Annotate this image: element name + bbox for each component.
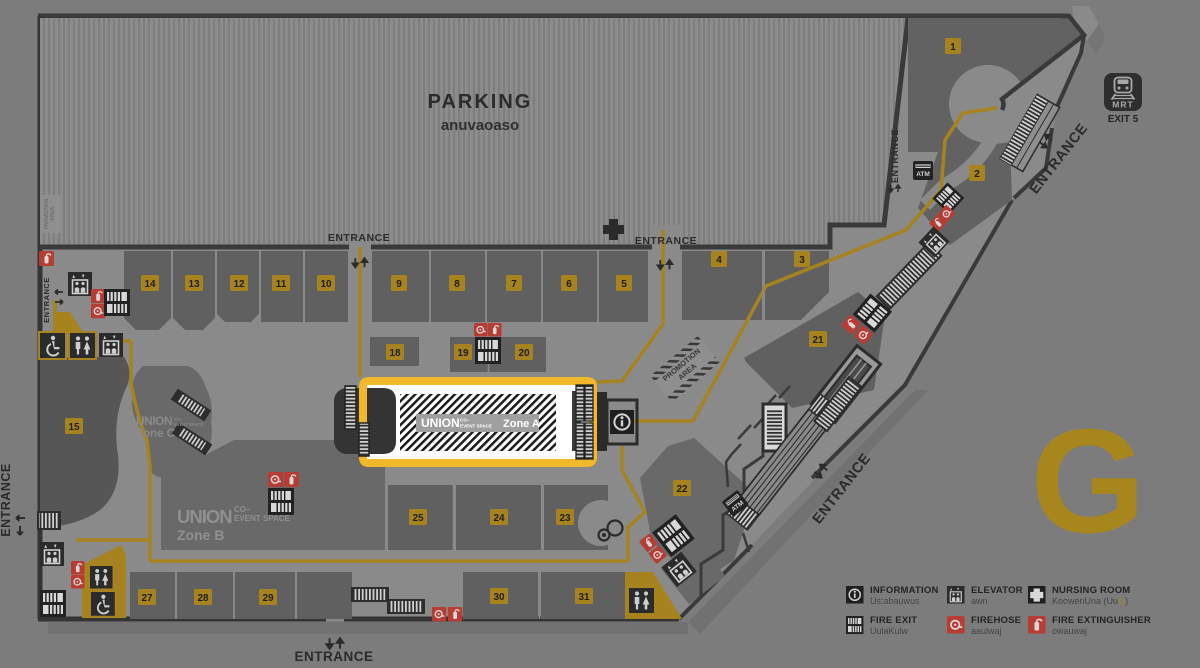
svg-text:2: 2 [974,169,980,180]
svg-text:28: 28 [197,593,209,604]
svg-text:anuvaoaso: anuvaoaso [441,117,519,134]
svg-text:14: 14 [144,279,156,290]
svg-text:30: 30 [493,592,505,603]
svg-text:7: 7 [511,279,517,290]
svg-text:6: 6 [566,279,572,290]
svg-text:ELEVATOR: ELEVATOR [971,585,1023,596]
svg-text:5: 5 [621,279,627,290]
svg-text:Zone A: Zone A [503,418,540,430]
svg-text:3: 3 [799,255,805,266]
svg-text:4: 4 [716,255,722,266]
svg-text:EXIT 5: EXIT 5 [1108,114,1139,125]
svg-text:G: G [1030,399,1145,564]
svg-text:Us:abauwus: Us:abauwus [870,596,920,606]
svg-text:18: 18 [389,348,401,359]
svg-text:AREA: AREA [50,207,56,222]
svg-text:Zone C: Zone C [136,428,175,440]
svg-text:19: 19 [457,348,469,359]
svg-text:MRT: MRT [1112,100,1133,110]
svg-text:ENTRANCE: ENTRANCE [42,277,51,323]
svg-text:EVENT SPACE: EVENT SPACE [234,514,291,523]
svg-text:29: 29 [262,593,274,604]
svg-text:awn: awn [971,596,988,606]
svg-text:CO–: CO– [460,418,470,423]
svg-text:10: 10 [320,279,332,290]
svg-text:9: 9 [396,279,402,290]
svg-text:Zone B: Zone B [177,527,224,543]
svg-text:UNION: UNION [177,506,232,527]
svg-text:ENTRANCE: ENTRANCE [328,232,390,244]
svg-text:UNION: UNION [136,414,172,428]
svg-text:15: 15 [68,422,80,433]
svg-text:8: 8 [454,279,460,290]
svg-text:NURSING ROOM: NURSING ROOM [1052,585,1130,596]
svg-text:FIREHOSE: FIREHOSE [971,615,1021,626]
svg-text:25: 25 [412,513,424,524]
svg-text:31: 31 [578,592,590,603]
svg-text:aaulwaj: aaulwaj [971,626,1002,636]
svg-text:11: 11 [276,279,287,290]
svg-text:EVENT SPACE: EVENT SPACE [174,422,203,427]
svg-text:UNION: UNION [421,416,460,430]
svg-text:22: 22 [676,484,688,495]
svg-text:CO–: CO– [234,505,251,514]
svg-text:FIRE EXIT: FIRE EXIT [870,615,917,626]
svg-text:ENTRANCE: ENTRANCE [890,129,900,183]
svg-text:INFORMATION: INFORMATION [870,585,939,596]
svg-text:ENTRANCE: ENTRANCE [0,463,13,536]
svg-text:FIRE EXTINGUISHER: FIRE EXTINGUISHER [1052,615,1151,626]
svg-text:23: 23 [559,513,571,524]
svg-text:24: 24 [493,513,505,524]
svg-text:20: 20 [518,348,530,359]
svg-text:EVENT SPACE: EVENT SPACE [460,424,492,429]
svg-text:1: 1 [950,42,956,53]
svg-text:ENTRANCE: ENTRANCE [294,649,373,664]
svg-text:ENTRANCE: ENTRANCE [635,235,697,247]
svg-text:owauwaj: owauwaj [1052,626,1087,636]
svg-text:UulaKulw: UulaKulw [870,626,909,636]
svg-text:12: 12 [233,279,245,290]
svg-text:KoowenUna (UuG): KoowenUna (UuG) [1052,596,1128,606]
svg-text:21: 21 [812,335,824,346]
svg-text:13: 13 [188,279,200,290]
svg-text:27: 27 [141,593,153,604]
svg-text:PARKING: PARKING [428,91,533,113]
